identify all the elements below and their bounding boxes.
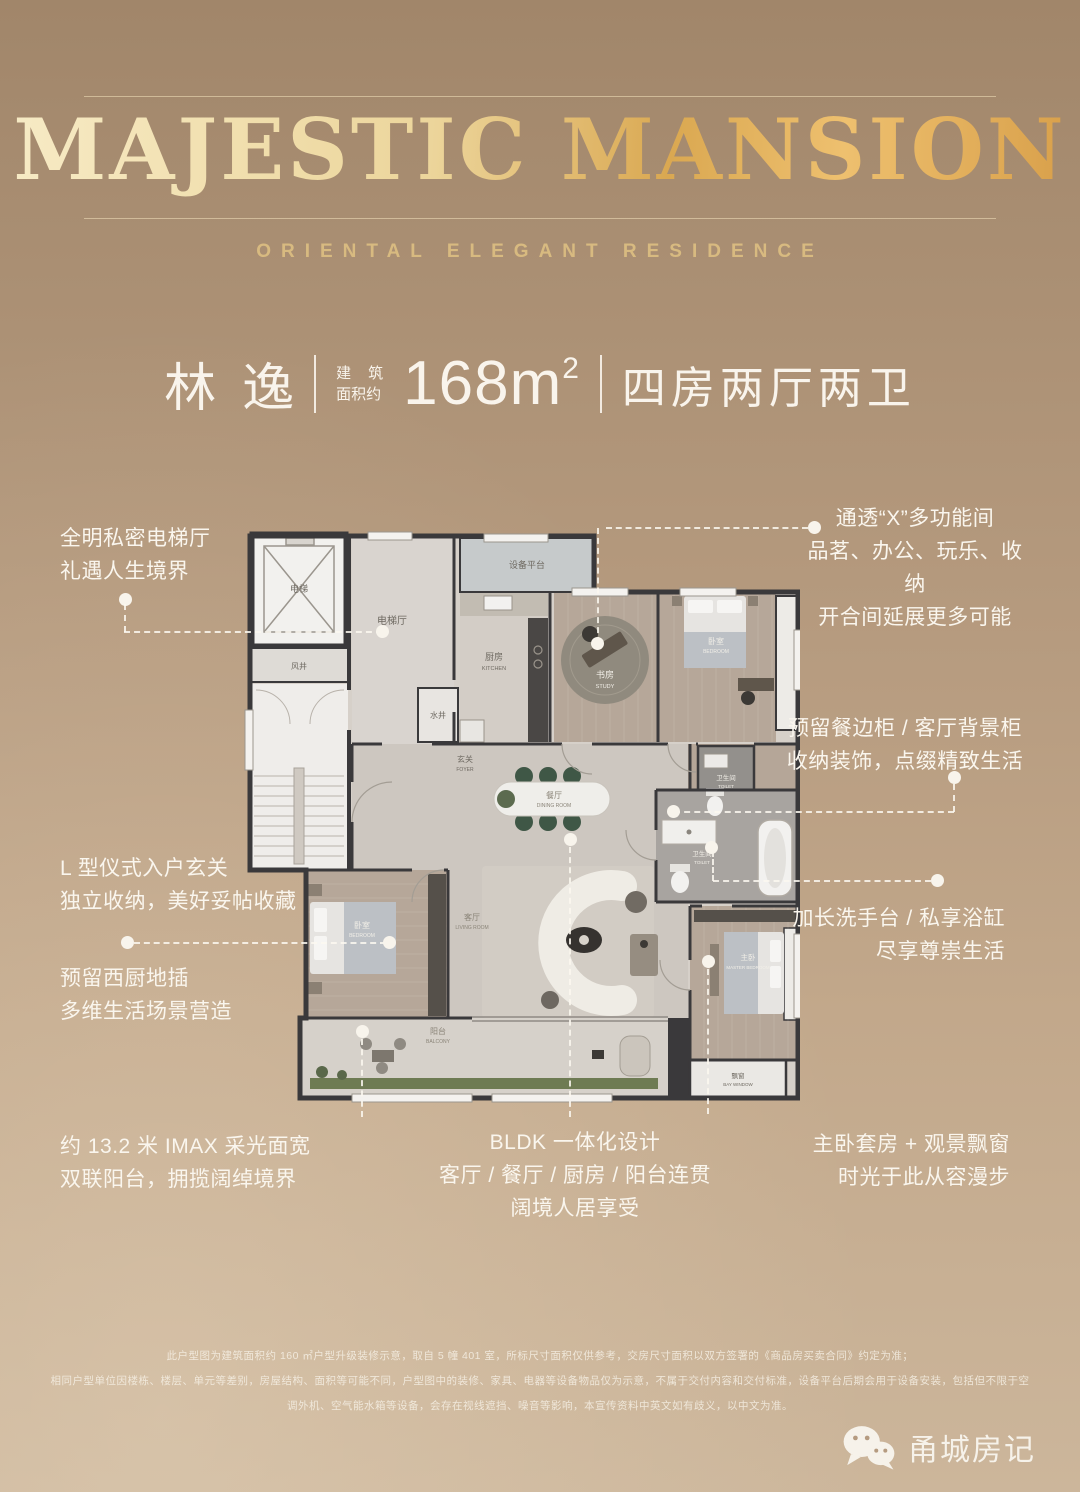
connector-dot [667,805,680,818]
callout-line: 双联阳台，拥揽阔绰境界 [60,1163,311,1196]
floor-plan: 电梯 风井 电梯厅 设备平台 厨房 KITCHEN 水井 书房 STUDY 卧室… [232,530,800,1105]
area-number: 168m [403,348,562,419]
headline-divider [600,355,602,413]
connector-dot [591,637,604,650]
label-living-cn: 客厅 [464,912,480,922]
label-dining-cn: 餐厅 [546,791,562,800]
connector-line [134,942,386,944]
callout-line: 客厅 / 餐厅 / 厨房 / 阳台连贯 [435,1159,715,1192]
unit-headline: 林逸 建筑 面积约 168m2 四房两厅两卫 [0,346,1080,421]
wall-column [668,1018,690,1098]
connector-line [712,851,714,881]
area-label: 建筑 面积约 [336,363,383,405]
connector-line [361,1039,363,1117]
connector-dot [376,625,389,638]
callout-foyer: L 型仪式入户玄关 独立收纳，美好妥帖收藏 [60,852,297,918]
callout-line: 品茗、办公、玩乐、收纳 [800,535,1030,601]
callout-line: 收纳装饰，点缀精致生活 [785,745,1025,778]
poster-subtitle: ORIENTAL ELEGANT RESIDENCE [0,241,1080,263]
area-label-line2: 面积约 [336,384,383,405]
label-balcony-en: BALCONY [426,1039,451,1045]
callout-balcony: 约 13.2 米 IMAX 采光面宽 双联阳台，拥揽阔绰境界 [60,1130,311,1196]
label-foyer-en: FOYER [456,767,474,773]
callout-master-suite: 主卧套房 + 观景飘窗 时光于此从容漫步 [775,1128,1010,1194]
callout-line: BLDK 一体化设计 [435,1126,715,1159]
label-foyer-cn: 玄关 [457,754,473,764]
callout-line: 主卧套房 + 观景飘窗 [775,1128,1010,1161]
watermark-label: 甬城房记 [908,1425,1036,1469]
label-bedroom-north-en: BEDROOM [703,649,729,655]
label-bedroom-west-cn: 卧室 [354,920,370,930]
connector-line [953,784,955,812]
disclaimer-line-1: 此户型图为建筑面积约 160 ㎡户型升级装修示意，取自 5 幢 401 室，所标… [0,1348,1080,1363]
connector-dot [931,874,944,887]
connector-line [713,880,931,882]
label-bay-window-en: BAY WINDOW [723,1082,753,1087]
callout-line: 预留西厨地插 [60,962,232,995]
label-dining-en: DINING ROOM [537,803,571,809]
callout-line: 加长洗手台 / 私享浴缸 [775,902,1005,935]
callout-multifunction: 通透“X”多功能间 品茗、办公、玩乐、收纳 开合间延展更多可能 [800,502,1030,634]
callout-line: 独立收纳，美好妥帖收藏 [60,885,297,918]
callout-line: 阔境人居享受 [435,1192,715,1225]
callout-line: 多维生活场景营造 [60,995,232,1028]
headline-divider [314,355,316,413]
header-rule-top [84,96,996,97]
connector-line [597,528,599,643]
callout-line: 预留餐边柜 / 客厅背景柜 [785,712,1025,745]
area-label-line1: 建筑 [336,363,400,384]
floor-plan-svg: 电梯 风井 电梯厅 设备平台 厨房 KITCHEN 水井 书房 STUDY 卧室… [232,530,800,1105]
label-toilet-cn: 卫生间 [716,773,736,782]
label-toilet-en: TOILET [718,784,734,789]
label-master-bedroom-cn: 主卧 [741,952,756,962]
connector-dot [564,833,577,846]
study-furniture [561,616,649,704]
label-study-cn: 书房 [596,669,614,680]
rooms-summary: 四房两厅两卫 [622,352,916,416]
area-value: 168m2 [403,348,580,419]
label-water-shaft: 水井 [430,710,446,720]
connector-line [569,847,571,1117]
wechat-icon [840,1422,898,1472]
label-bedroom-north-cn: 卧室 [708,636,724,646]
label-bedroom-west-en: BEDROOM [349,933,375,939]
callout-line: 开合间延展更多可能 [800,601,1030,634]
poster: MAJESTIC MANSION ORIENTAL ELEGANT RESIDE… [0,0,1080,1492]
disclaimer-line-2: 相同户型单位因楼栋、楼层、单元等差别，房屋结构、面积等可能不同，户型图中的装修、… [0,1373,1080,1388]
connector-line [707,969,709,1114]
label-elevator: 电梯 [290,583,308,594]
callout-elevator-hall: 全明私密电梯厅 礼遇人生境界 [60,522,211,588]
callout-line: 约 13.2 米 IMAX 采光面宽 [60,1130,311,1163]
header-rule-bottom [84,218,996,219]
label-bay-window-cn: 飘窗 [732,1071,745,1080]
label-balcony-cn: 阳台 [430,1026,446,1036]
label-air-shaft: 风井 [291,661,307,671]
connector-dot [121,936,134,949]
disclaimer-line-3: 调外机、空气能水箱等设备，会存在视线遮挡、噪音等影响，本宣传资料中英文如有歧义，… [0,1398,1080,1413]
connector-line [124,604,126,632]
callout-line: 时光于此从容漫步 [775,1161,1010,1194]
watermark: 甬城房记 [840,1422,1036,1472]
callout-bathroom: 加长洗手台 / 私享浴缸 尽享尊崇生活 [775,902,1005,968]
label-living-en: LIVING ROOM [455,925,488,931]
callout-west-kitchen: 预留西厨地插 多维生活场景营造 [60,962,232,1028]
poster-title: MAJESTIC MANSION [0,100,1080,199]
callout-line: 通透“X”多功能间 [800,502,1030,535]
label-equipment-platform: 设备平台 [509,559,545,570]
label-master-bath-en: TOILET [694,860,710,865]
label-study-en: STUDY [596,684,615,690]
connector-line [674,811,954,813]
callout-sideboard: 预留餐边柜 / 客厅背景柜 收纳装饰，点缀精致生活 [785,712,1025,778]
callout-line: L 型仪式入户玄关 [60,852,297,885]
connector-dot [383,936,396,949]
connector-dot [702,955,715,968]
connector-dot [705,841,718,854]
callout-line: 礼遇人生境界 [60,555,211,588]
label-kitchen-en: KITCHEN [482,666,506,672]
connector-dot [356,1025,369,1038]
callout-line: 尽享尊崇生活 [775,935,1005,968]
connector-line [124,631,382,633]
callout-bldk: BLDK 一体化设计 客厅 / 餐厅 / 厨房 / 阳台连贯 阔境人居享受 [435,1126,715,1225]
area-superscript: 2 [562,354,580,384]
callout-line: 全明私密电梯厅 [60,522,211,555]
label-master-bedroom-en: MASTER BEDROOM [726,965,770,970]
label-kitchen-cn: 厨房 [485,651,503,662]
connector-line [606,527,808,529]
unit-name: 林逸 [164,346,320,421]
